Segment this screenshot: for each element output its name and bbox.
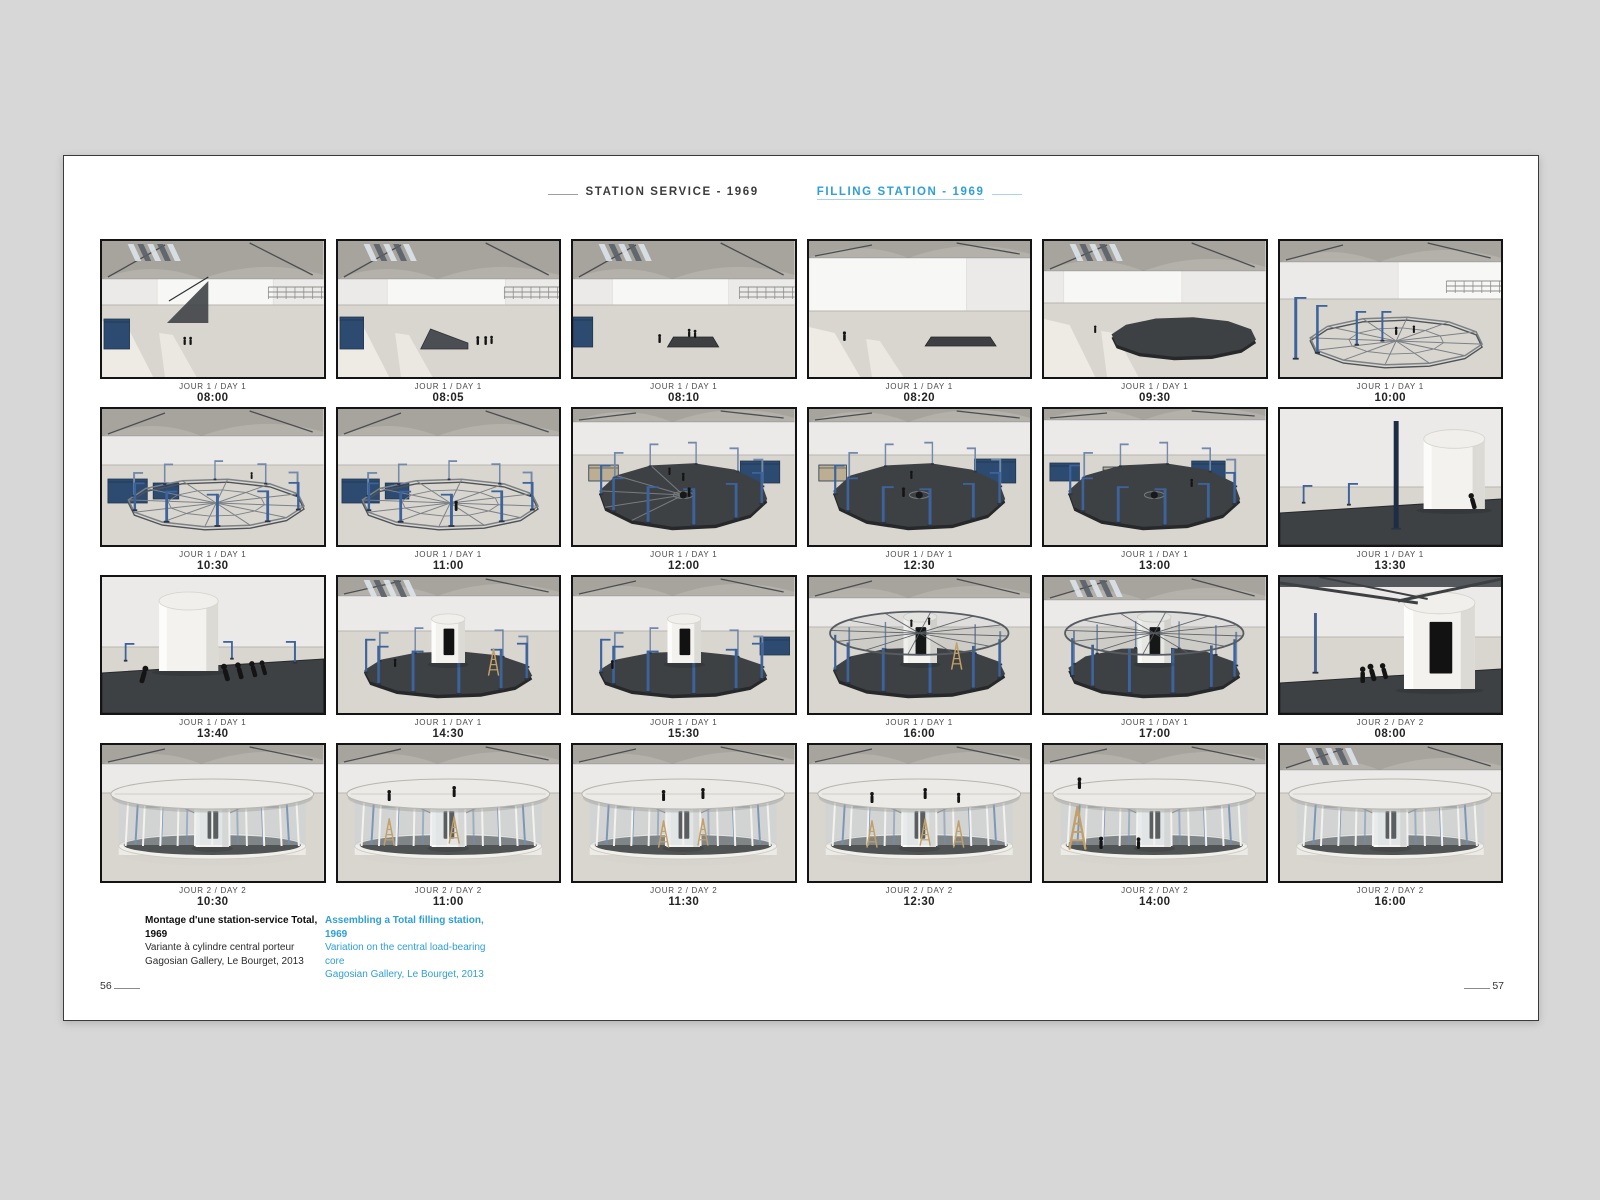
photo-caption: JOUR 2 / DAY 208:00 <box>1278 718 1504 742</box>
photo-cell-17: JOUR 1 / DAY 117:00 <box>1042 575 1268 743</box>
photo-caption-time: 09:30 <box>1042 392 1268 404</box>
construction-photo <box>336 575 562 715</box>
construction-photo <box>571 743 797 883</box>
photo-caption: JOUR 1 / DAY 108:05 <box>336 382 562 406</box>
construction-photo <box>336 743 562 883</box>
photo-caption-time: 13:40 <box>100 728 326 740</box>
photo-caption: JOUR 1 / DAY 108:20 <box>807 382 1033 406</box>
photo-caption-day: JOUR 2 / DAY 2 <box>1278 886 1504 895</box>
photo-cell-21: JOUR 2 / DAY 211:30 <box>571 743 797 911</box>
photo-caption: JOUR 2 / DAY 211:00 <box>336 886 562 910</box>
construction-photo <box>807 239 1033 379</box>
photo-caption-time: 08:00 <box>100 392 326 404</box>
construction-photo <box>100 239 326 379</box>
photo-caption-time: 11:00 <box>336 896 562 908</box>
photo-caption: JOUR 2 / DAY 210:30 <box>100 886 326 910</box>
photo-caption-day: JOUR 2 / DAY 2 <box>1278 718 1504 727</box>
photo-caption-time: 08:00 <box>1278 728 1504 740</box>
photo-caption-day: JOUR 1 / DAY 1 <box>807 382 1033 391</box>
photo-caption-day: JOUR 2 / DAY 2 <box>807 886 1033 895</box>
photo-cell-10: JOUR 1 / DAY 112:30 <box>807 407 1033 575</box>
photo-caption-day: JOUR 2 / DAY 2 <box>571 886 797 895</box>
photo-caption-day: JOUR 1 / DAY 1 <box>571 382 797 391</box>
photo-caption-time: 13:00 <box>1042 560 1268 572</box>
caption-en-title: Assembling a Total filling station, 1969 <box>325 914 500 941</box>
photo-caption: JOUR 1 / DAY 112:30 <box>807 550 1033 574</box>
photo-caption: JOUR 1 / DAY 112:00 <box>571 550 797 574</box>
caption-english: Assembling a Total filling station, 1969… <box>325 914 500 982</box>
caption-en-line3: Gagosian Gallery, Le Bourget, 2013 <box>325 968 500 982</box>
photo-grid: JOUR 1 / DAY 108:00JOUR 1 / DAY 108:05JO… <box>100 239 1503 911</box>
photo-cell-1: JOUR 1 / DAY 108:00 <box>100 239 326 407</box>
photo-caption-day: JOUR 1 / DAY 1 <box>336 382 562 391</box>
photo-caption: JOUR 1 / DAY 115:30 <box>571 718 797 742</box>
page-number-left-value: 56 <box>100 980 112 992</box>
book-spread: STATION SERVICE - 1969 FILLING STATION -… <box>63 155 1539 1021</box>
construction-photo <box>1278 239 1504 379</box>
construction-photo <box>571 239 797 379</box>
header-title-french: STATION SERVICE - 1969 <box>548 184 759 198</box>
photo-caption-day: JOUR 1 / DAY 1 <box>571 550 797 559</box>
photo-caption-day: JOUR 1 / DAY 1 <box>1042 382 1268 391</box>
construction-photo <box>1278 743 1504 883</box>
photo-caption-day: JOUR 2 / DAY 2 <box>1042 886 1268 895</box>
photo-caption: JOUR 1 / DAY 110:00 <box>1278 382 1504 406</box>
photo-cell-23: JOUR 2 / DAY 214:00 <box>1042 743 1268 911</box>
photo-caption: JOUR 2 / DAY 216:00 <box>1278 886 1504 910</box>
photo-caption-day: JOUR 2 / DAY 2 <box>336 886 562 895</box>
header-rule-left <box>548 184 578 195</box>
photo-cell-24: JOUR 2 / DAY 216:00 <box>1278 743 1504 911</box>
photo-caption-day: JOUR 1 / DAY 1 <box>807 550 1033 559</box>
photo-caption: JOUR 1 / DAY 113:40 <box>100 718 326 742</box>
construction-photo <box>100 743 326 883</box>
photo-caption-time: 10:00 <box>1278 392 1504 404</box>
photo-caption: JOUR 1 / DAY 113:30 <box>1278 550 1504 574</box>
photo-cell-2: JOUR 1 / DAY 108:05 <box>336 239 562 407</box>
photo-caption-time: 08:10 <box>571 392 797 404</box>
photo-cell-22: JOUR 2 / DAY 212:30 <box>807 743 1033 911</box>
construction-photo <box>571 575 797 715</box>
photo-caption-time: 16:00 <box>807 728 1033 740</box>
photo-caption-time: 12:30 <box>807 896 1033 908</box>
construction-photo <box>1278 575 1504 715</box>
photo-cell-6: JOUR 1 / DAY 110:00 <box>1278 239 1504 407</box>
construction-photo <box>1042 575 1268 715</box>
construction-photo <box>336 407 562 547</box>
photo-caption: JOUR 1 / DAY 110:30 <box>100 550 326 574</box>
construction-photo <box>1042 407 1268 547</box>
header-rule-right <box>992 184 1022 195</box>
photo-caption: JOUR 1 / DAY 116:00 <box>807 718 1033 742</box>
photo-caption: JOUR 1 / DAY 111:00 <box>336 550 562 574</box>
construction-photo <box>100 575 326 715</box>
photo-cell-11: JOUR 1 / DAY 113:00 <box>1042 407 1268 575</box>
photo-caption-time: 08:05 <box>336 392 562 404</box>
title-fr: STATION SERVICE - 1969 <box>586 186 759 198</box>
construction-photo <box>1042 239 1268 379</box>
page-number-right: 57 <box>1464 980 1504 992</box>
photo-caption: JOUR 2 / DAY 214:00 <box>1042 886 1268 910</box>
photo-caption-day: JOUR 1 / DAY 1 <box>336 718 562 727</box>
photo-caption-day: JOUR 1 / DAY 1 <box>1042 550 1268 559</box>
photo-caption-time: 15:30 <box>571 728 797 740</box>
photo-caption-time: 14:30 <box>336 728 562 740</box>
photo-caption: JOUR 1 / DAY 108:00 <box>100 382 326 406</box>
photo-caption: JOUR 2 / DAY 211:30 <box>571 886 797 910</box>
photo-caption-day: JOUR 1 / DAY 1 <box>100 550 326 559</box>
construction-photo <box>807 575 1033 715</box>
photo-cell-15: JOUR 1 / DAY 115:30 <box>571 575 797 743</box>
photo-caption: JOUR 1 / DAY 117:00 <box>1042 718 1268 742</box>
caption-french: Montage d'une station-service Total, 196… <box>145 914 320 968</box>
photo-cell-13: JOUR 1 / DAY 113:40 <box>100 575 326 743</box>
photo-caption-day: JOUR 1 / DAY 1 <box>1278 550 1504 559</box>
photo-caption-time: 17:00 <box>1042 728 1268 740</box>
caption-fr-line3: Gagosian Gallery, Le Bourget, 2013 <box>145 955 320 969</box>
photo-cell-12: JOUR 1 / DAY 113:30 <box>1278 407 1504 575</box>
construction-photo <box>1278 407 1504 547</box>
photo-caption-day: JOUR 1 / DAY 1 <box>336 550 562 559</box>
photo-caption-day: JOUR 1 / DAY 1 <box>571 718 797 727</box>
photo-caption-time: 10:30 <box>100 896 326 908</box>
photo-cell-3: JOUR 1 / DAY 108:10 <box>571 239 797 407</box>
photo-caption-time: 08:20 <box>807 392 1033 404</box>
photo-caption-day: JOUR 1 / DAY 1 <box>1278 382 1504 391</box>
photo-cell-4: JOUR 1 / DAY 108:20 <box>807 239 1033 407</box>
page-number-left: 56 <box>100 980 140 992</box>
photo-caption-time: 14:00 <box>1042 896 1268 908</box>
photo-cell-20: JOUR 2 / DAY 211:00 <box>336 743 562 911</box>
construction-photo <box>100 407 326 547</box>
photo-caption: JOUR 1 / DAY 109:30 <box>1042 382 1268 406</box>
page-number-right-rule <box>1464 980 1490 989</box>
photo-cell-16: JOUR 1 / DAY 116:00 <box>807 575 1033 743</box>
construction-photo <box>336 239 562 379</box>
header-title-english: FILLING STATION - 1969 <box>817 184 1023 200</box>
photo-caption-day: JOUR 1 / DAY 1 <box>100 718 326 727</box>
construction-photo <box>807 407 1033 547</box>
photo-caption-day: JOUR 1 / DAY 1 <box>100 382 326 391</box>
photo-cell-19: JOUR 2 / DAY 210:30 <box>100 743 326 911</box>
title-en: FILLING STATION - 1969 <box>817 186 985 200</box>
caption-fr-line2: Variante à cylindre central porteur <box>145 941 320 955</box>
caption-en-line2: Variation on the central load-bearing co… <box>325 941 500 968</box>
photo-caption-day: JOUR 2 / DAY 2 <box>100 886 326 895</box>
photo-caption-time: 11:00 <box>336 560 562 572</box>
photo-caption-time: 12:30 <box>807 560 1033 572</box>
photo-caption: JOUR 1 / DAY 113:00 <box>1042 550 1268 574</box>
spread-header: STATION SERVICE - 1969 FILLING STATION -… <box>48 184 1522 200</box>
page-number-left-rule <box>114 980 140 989</box>
photo-caption: JOUR 1 / DAY 108:10 <box>571 382 797 406</box>
photo-cell-7: JOUR 1 / DAY 110:30 <box>100 407 326 575</box>
photo-cell-9: JOUR 1 / DAY 112:00 <box>571 407 797 575</box>
photo-caption: JOUR 2 / DAY 212:30 <box>807 886 1033 910</box>
photo-cell-8: JOUR 1 / DAY 111:00 <box>336 407 562 575</box>
photo-cell-14: JOUR 1 / DAY 114:30 <box>336 575 562 743</box>
photo-caption-day: JOUR 1 / DAY 1 <box>1042 718 1268 727</box>
construction-photo <box>571 407 797 547</box>
photo-cell-5: JOUR 1 / DAY 109:30 <box>1042 239 1268 407</box>
page-number-right-value: 57 <box>1492 980 1504 992</box>
photo-caption-day: JOUR 1 / DAY 1 <box>807 718 1033 727</box>
caption-fr-title: Montage d'une station-service Total, 196… <box>145 914 320 941</box>
photo-caption-time: 13:30 <box>1278 560 1504 572</box>
photo-caption: JOUR 1 / DAY 114:30 <box>336 718 562 742</box>
construction-photo <box>1042 743 1268 883</box>
construction-photo <box>807 743 1033 883</box>
photo-cell-18: JOUR 2 / DAY 208:00 <box>1278 575 1504 743</box>
photo-caption-time: 12:00 <box>571 560 797 572</box>
photo-caption-time: 11:30 <box>571 896 797 908</box>
photo-caption-time: 16:00 <box>1278 896 1504 908</box>
photo-caption-time: 10:30 <box>100 560 326 572</box>
